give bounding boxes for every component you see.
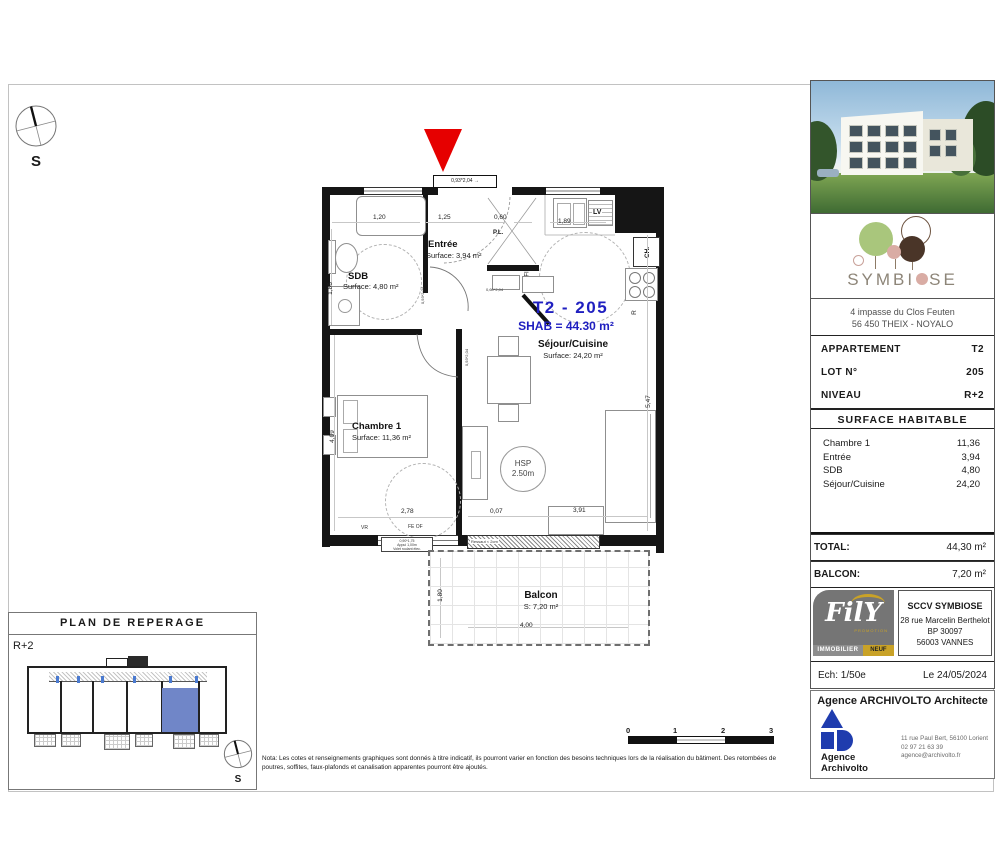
threshold-note: Ressaut < 2cm — [470, 539, 499, 544]
total-row: TOTAL:44,30 m² — [811, 534, 994, 561]
surface-row: Entrée3,94 — [823, 451, 980, 465]
surface-row: Chambre 111,36 — [823, 437, 980, 451]
washing-machine — [522, 276, 554, 293]
architect-contact: 11 rue Paul Bert, 56100 Lorient 02 97 21… — [901, 735, 988, 761]
mini-compass-icon: S — [223, 739, 253, 785]
shower — [356, 196, 426, 236]
surface-list: Chambre 111,36 Entrée3,94 SDB4,80 Séjour… — [811, 429, 994, 534]
room-label-sejour: Séjour/Cuisine — [518, 339, 628, 350]
car — [817, 169, 839, 177]
location-plan: PLAN DE REPERAGE R+2 — [8, 612, 257, 790]
architect-name: Agence Archivolto — [821, 753, 868, 774]
scale-date-row: Ech: 1/50e Le 24/05/2024 — [811, 662, 994, 688]
chair — [498, 404, 519, 422]
level-label: R+2 — [13, 640, 34, 652]
mini-balcony — [104, 734, 130, 750]
entrance-marker-icon — [424, 129, 462, 172]
room-surface-sejour: Surface: 24,20 m² — [518, 351, 628, 360]
shab-label: SHAB = 44.30 m² — [496, 319, 636, 333]
logo-o-dot — [916, 273, 928, 285]
mini-balcony — [173, 734, 195, 749]
shelf — [462, 426, 488, 500]
corridor — [49, 672, 207, 682]
balcony-row: BALCON:7,20 m² — [811, 561, 994, 588]
symbiose-wordmark: SYMBISE — [811, 270, 994, 290]
location-plan-title: PLAN DE REPERAGE — [9, 613, 256, 635]
highlighted-unit — [162, 688, 198, 732]
chair — [498, 336, 519, 356]
turning-circle — [385, 463, 461, 539]
room-label-entree: Entrée — [428, 239, 458, 250]
north-compass-icon: S — [14, 104, 58, 164]
archivolto-logo-icon — [821, 732, 834, 749]
archivolto-logo-icon — [821, 709, 843, 728]
compass-south-label: S — [14, 153, 58, 170]
mini-balcony — [61, 734, 81, 747]
apartment-title: T2 - 205 — [508, 298, 633, 318]
window-spec-note: 0,90*1,75 Appui 1,00m Volet roulant élec… — [381, 537, 433, 552]
closet-label: P.L. — [493, 230, 503, 236]
surface-row: SDB4,80 — [823, 464, 980, 478]
room-surface-entree: Surface: 3,94 m² — [426, 251, 481, 260]
cooktop — [625, 268, 658, 301]
building-photo — [811, 81, 994, 214]
apartment-info: APPARTEMENTT2 LOT N°205 NIVEAUR+2 — [811, 336, 994, 409]
title-block-panel: SYMBISE 4 impasse du Clos Feuten 56 450 … — [810, 80, 995, 689]
project-address: 4 impasse du Clos Feuten 56 450 THEIX - … — [811, 299, 994, 336]
toilet — [335, 243, 358, 273]
room-label-sdb: SDB — [348, 271, 368, 282]
balcony: Balcon S: 7,20 m² 1,80 4,00 — [428, 550, 650, 646]
mini-balcony — [135, 734, 153, 747]
apartment-floor-plan: HSP 2.50m LV CH. R FI P.L. SDB Surface: … — [318, 183, 668, 653]
architect-block: Agence ARCHIVOLTO Architecte Agence Arch… — [810, 690, 995, 779]
architect-header: Agence ARCHIVOLTO Architecte — [811, 691, 994, 707]
nota-text: Nota: Les cotes et renseignements graphi… — [262, 755, 796, 772]
mini-balcony — [199, 734, 219, 747]
surface-row: Séjour/Cuisine24,20 — [823, 478, 980, 492]
scale-label: Ech: 1/50e — [818, 670, 866, 681]
room-surface-sdb: Surface: 4,80 m² — [343, 282, 398, 291]
dining-table — [487, 356, 531, 404]
date-label: Le 24/05/2024 — [923, 670, 987, 681]
promoter-block: FilY PROMOTION IMMOBILIER NEUF SCCV SYMB… — [811, 588, 994, 662]
sofa — [605, 410, 656, 523]
building-outline — [27, 666, 227, 734]
ceiling-height-tag: HSP 2.50m — [500, 446, 546, 492]
room-label-chambre: Chambre 1 — [352, 421, 401, 432]
archivolto-logo-icon — [837, 730, 853, 751]
scale-bar: 0 1 2 3 — [628, 726, 778, 746]
floor-plan-sheet: S — [0, 0, 1000, 857]
room-surface-chambre: Surface: 11,36 m² — [352, 433, 411, 442]
mini-balcony — [34, 734, 56, 747]
symbiose-logo: SYMBISE — [811, 214, 994, 299]
promoter-address: SCCV SYMBIOSE 28 rue Marcelin Berthelot … — [898, 590, 992, 656]
surface-header: SURFACE HABITABLE — [811, 409, 994, 429]
fily-logo: FilY PROMOTION IMMOBILIER NEUF — [813, 590, 894, 656]
